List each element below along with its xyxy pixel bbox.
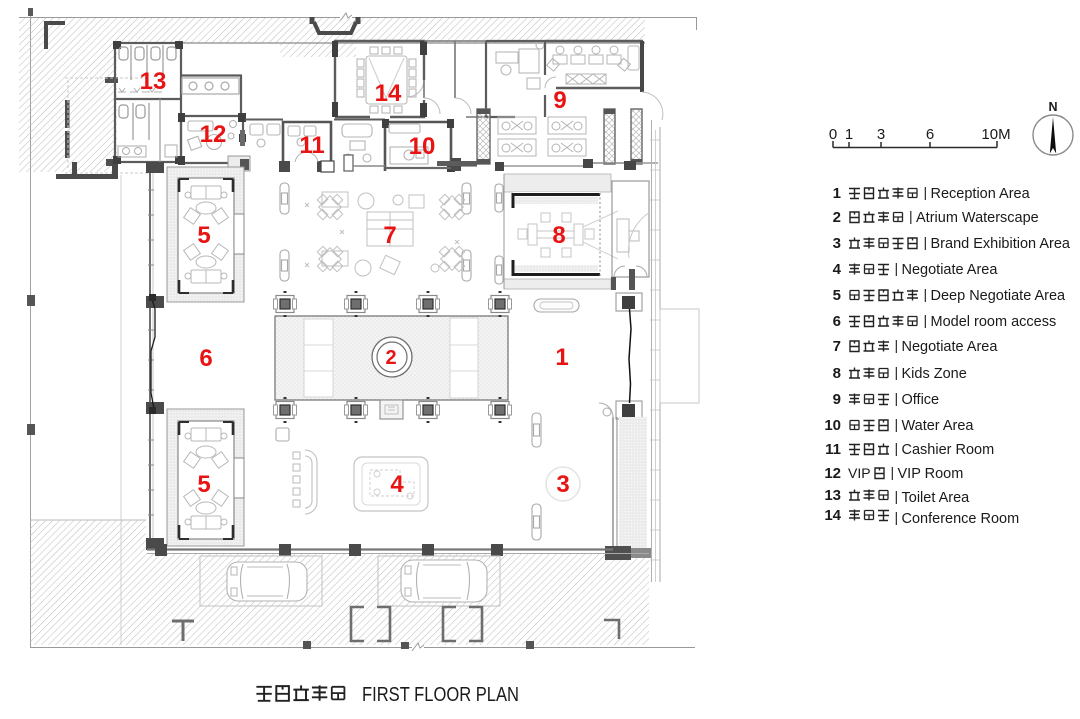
svg-text:11: 11 [825, 441, 841, 458]
svg-text:0: 0 [829, 126, 837, 143]
svg-text:|: | [924, 184, 928, 200]
svg-text:2: 2 [833, 209, 841, 226]
svg-text:N: N [1048, 100, 1057, 114]
svg-text:2: 2 [385, 347, 396, 369]
svg-text:10M: 10M [981, 126, 1010, 143]
svg-text:Office: Office [902, 392, 940, 408]
svg-text:|: | [895, 509, 899, 525]
svg-text:|: | [924, 286, 928, 302]
svg-text:12: 12 [824, 465, 841, 482]
svg-text:|: | [924, 312, 928, 328]
svg-text:|: | [895, 440, 899, 456]
svg-text:11: 11 [299, 132, 324, 159]
svg-text:13: 13 [140, 68, 167, 95]
svg-text:10: 10 [824, 417, 841, 434]
svg-text:6: 6 [926, 126, 934, 143]
svg-text:Conference Room: Conference Room [902, 511, 1020, 527]
svg-text:|: | [891, 464, 895, 480]
svg-text:|: | [895, 390, 899, 406]
svg-text:|: | [909, 208, 913, 224]
svg-text:Brand Exhibition Area: Brand Exhibition Area [931, 236, 1071, 252]
svg-text:4: 4 [390, 471, 404, 498]
svg-text:10: 10 [409, 133, 436, 160]
svg-text:3: 3 [833, 235, 841, 252]
svg-text:6: 6 [199, 345, 212, 372]
svg-text:12: 12 [200, 121, 227, 148]
svg-text:8: 8 [552, 222, 565, 249]
svg-text:3: 3 [556, 471, 569, 498]
svg-text:Negotiate Area: Negotiate Area [902, 262, 999, 278]
svg-text:Deep Negotiate Area: Deep Negotiate Area [931, 288, 1067, 304]
svg-text:1: 1 [845, 126, 853, 143]
svg-text:|: | [895, 416, 899, 432]
svg-text:3: 3 [877, 126, 885, 143]
svg-text:|: | [895, 488, 899, 504]
svg-text:14: 14 [824, 507, 841, 524]
svg-text:Atrium Waterscape: Atrium Waterscape [916, 210, 1039, 226]
svg-text:VIP Room: VIP Room [898, 466, 964, 482]
svg-text:Model room access: Model room access [931, 314, 1057, 330]
svg-text:4: 4 [833, 261, 842, 278]
svg-text:7: 7 [383, 222, 396, 249]
svg-text:9: 9 [553, 87, 566, 114]
svg-text:5: 5 [833, 287, 841, 304]
svg-text:|: | [895, 364, 899, 380]
svg-text:7: 7 [833, 338, 841, 355]
svg-text:13: 13 [824, 487, 841, 504]
svg-text:Water Area: Water Area [902, 418, 975, 434]
svg-text:VIP: VIP [848, 465, 871, 481]
svg-text:|: | [895, 337, 899, 353]
svg-text:Negotiate Area: Negotiate Area [902, 339, 999, 355]
svg-text:FIRST FLOOR PLAN: FIRST FLOOR PLAN [362, 684, 519, 706]
svg-text:6: 6 [833, 313, 841, 330]
svg-text:Cashier Room: Cashier Room [902, 442, 995, 458]
svg-text:Kids Zone: Kids Zone [902, 366, 967, 382]
svg-text:5: 5 [197, 222, 210, 249]
svg-text:|: | [895, 260, 899, 276]
svg-text:Reception Area: Reception Area [931, 186, 1031, 202]
svg-text:14: 14 [375, 80, 402, 107]
svg-text:1: 1 [555, 344, 568, 371]
svg-text:8: 8 [833, 365, 841, 382]
svg-text:9: 9 [833, 391, 841, 408]
svg-text:1: 1 [833, 185, 841, 202]
svg-text:Toilet Area: Toilet Area [902, 490, 971, 506]
svg-text:|: | [924, 234, 928, 250]
svg-text:5: 5 [197, 471, 210, 498]
